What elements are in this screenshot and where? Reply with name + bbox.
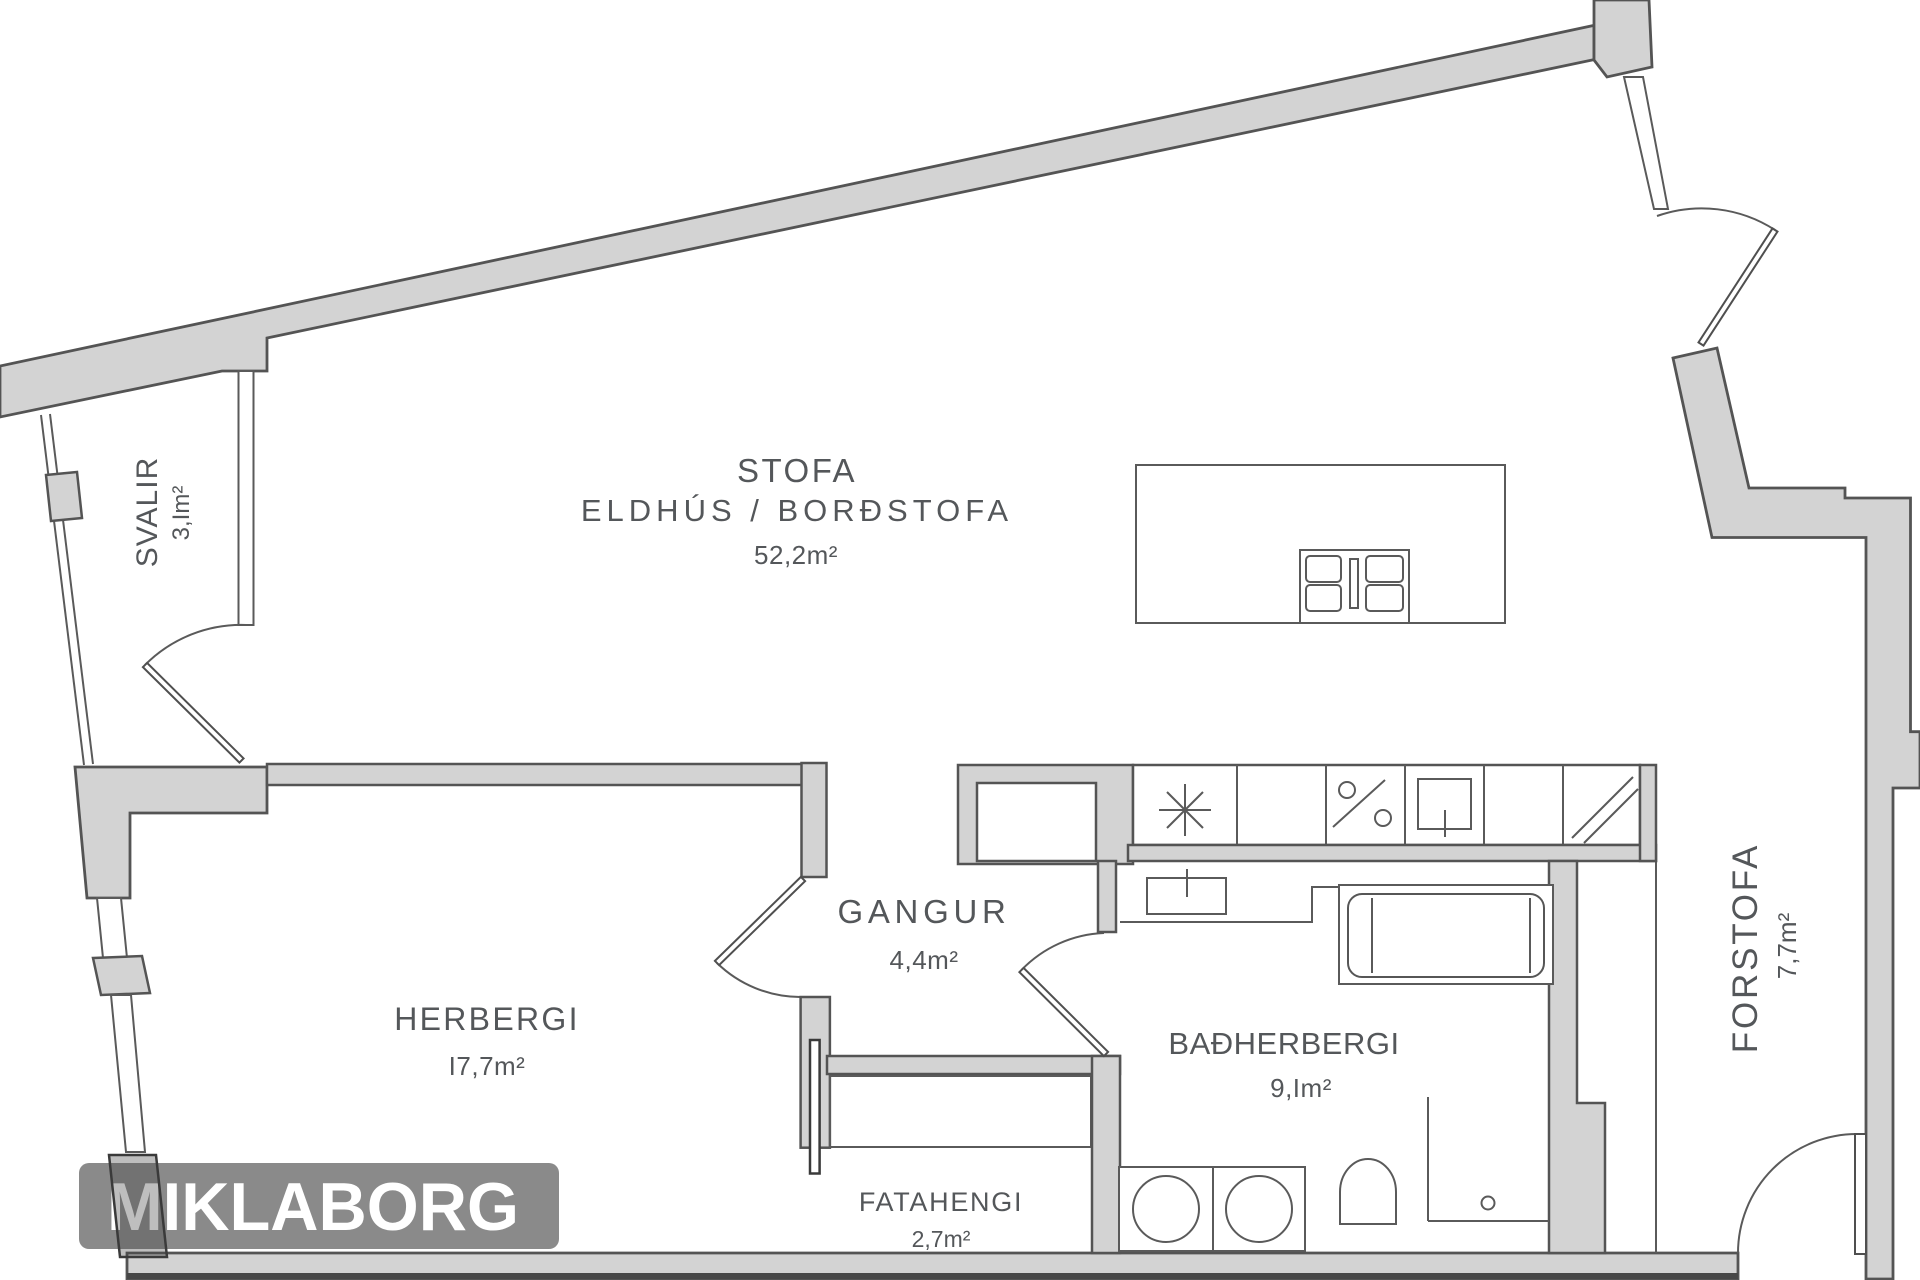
svg-text:FATAHENGI: FATAHENGI [859, 1187, 1023, 1217]
svg-text:9,Im²: 9,Im² [1270, 1073, 1332, 1103]
svg-text:SVALIR: SVALIR [131, 457, 164, 568]
svg-text:7,7m²: 7,7m² [1772, 912, 1802, 979]
svg-text:3,Im²: 3,Im² [168, 486, 195, 541]
svg-text:4,4m²: 4,4m² [890, 945, 959, 975]
svg-text:I7,7m²: I7,7m² [449, 1051, 526, 1081]
svg-text:HERBERGI: HERBERGI [394, 1001, 580, 1037]
svg-text:STOFA: STOFA [737, 452, 857, 489]
svg-text:ELDHÚS / BORÐSTOFA: ELDHÚS / BORÐSTOFA [581, 493, 1013, 528]
svg-text:GANGUR: GANGUR [837, 893, 1010, 930]
svg-text:BAÐHERBERGI: BAÐHERBERGI [1168, 1026, 1399, 1061]
svg-text:MIKLABORG: MIKLABORG [107, 1169, 519, 1245]
svg-text:52,2m²: 52,2m² [754, 540, 838, 570]
svg-text:FORSTOFA: FORSTOFA [1726, 843, 1765, 1053]
svg-text:2,7m²: 2,7m² [912, 1226, 971, 1252]
